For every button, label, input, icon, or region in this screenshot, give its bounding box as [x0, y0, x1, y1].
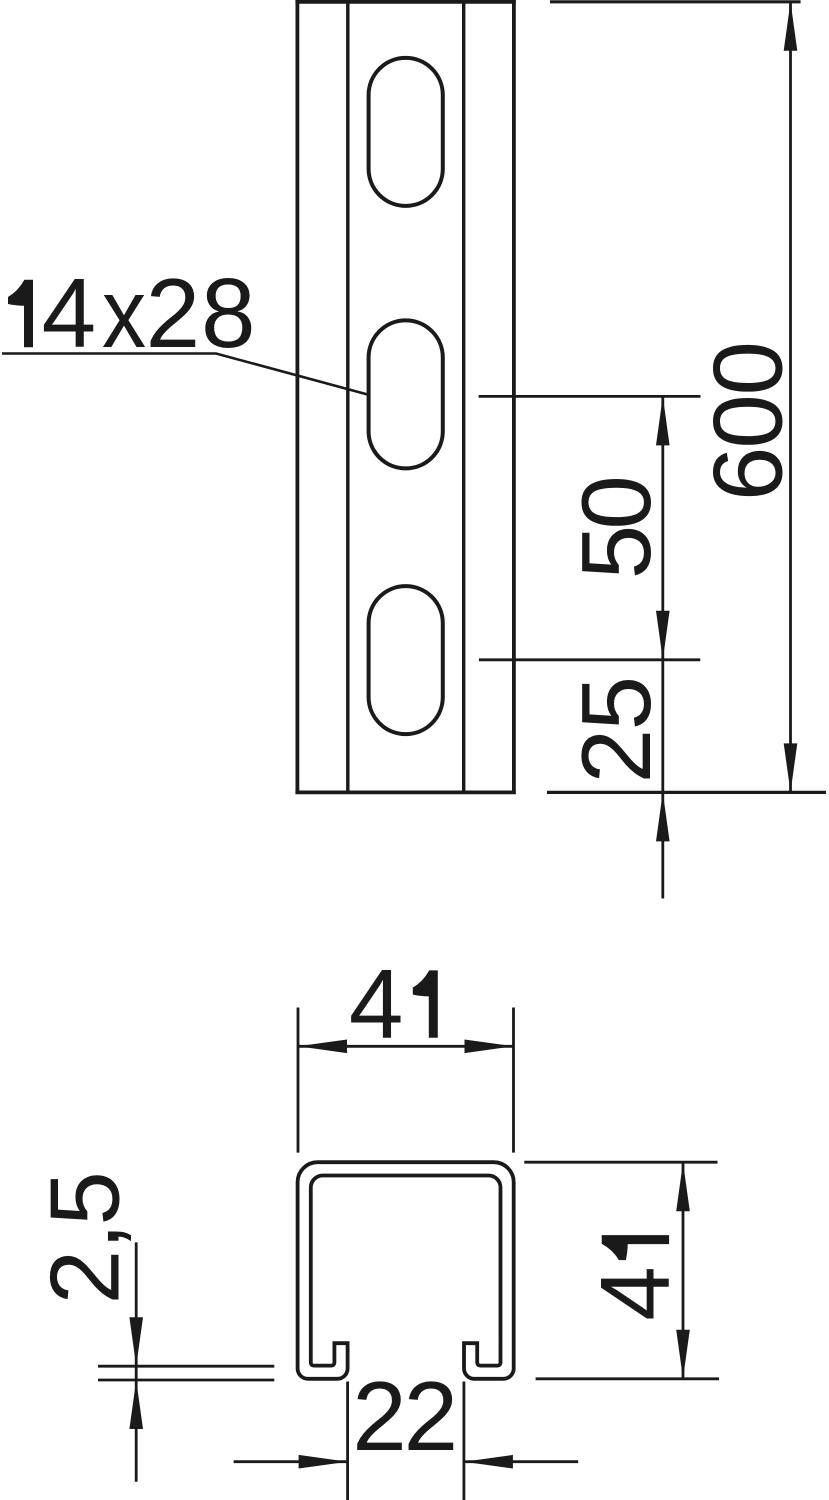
svg-text:50: 50 [561, 475, 671, 579]
svg-text:22: 22 [352, 1361, 458, 1471]
svg-text:2,5: 2,5 [30, 1171, 140, 1304]
svg-text:4: 4 [349, 949, 404, 1059]
svg-text:28: 28 [146, 258, 256, 368]
svg-text:600: 600 [693, 341, 803, 501]
svg-text:x: x [102, 259, 146, 368]
svg-text:4: 4 [580, 1266, 690, 1321]
svg-text:4: 4 [42, 258, 97, 368]
svg-text:25: 25 [561, 676, 671, 783]
